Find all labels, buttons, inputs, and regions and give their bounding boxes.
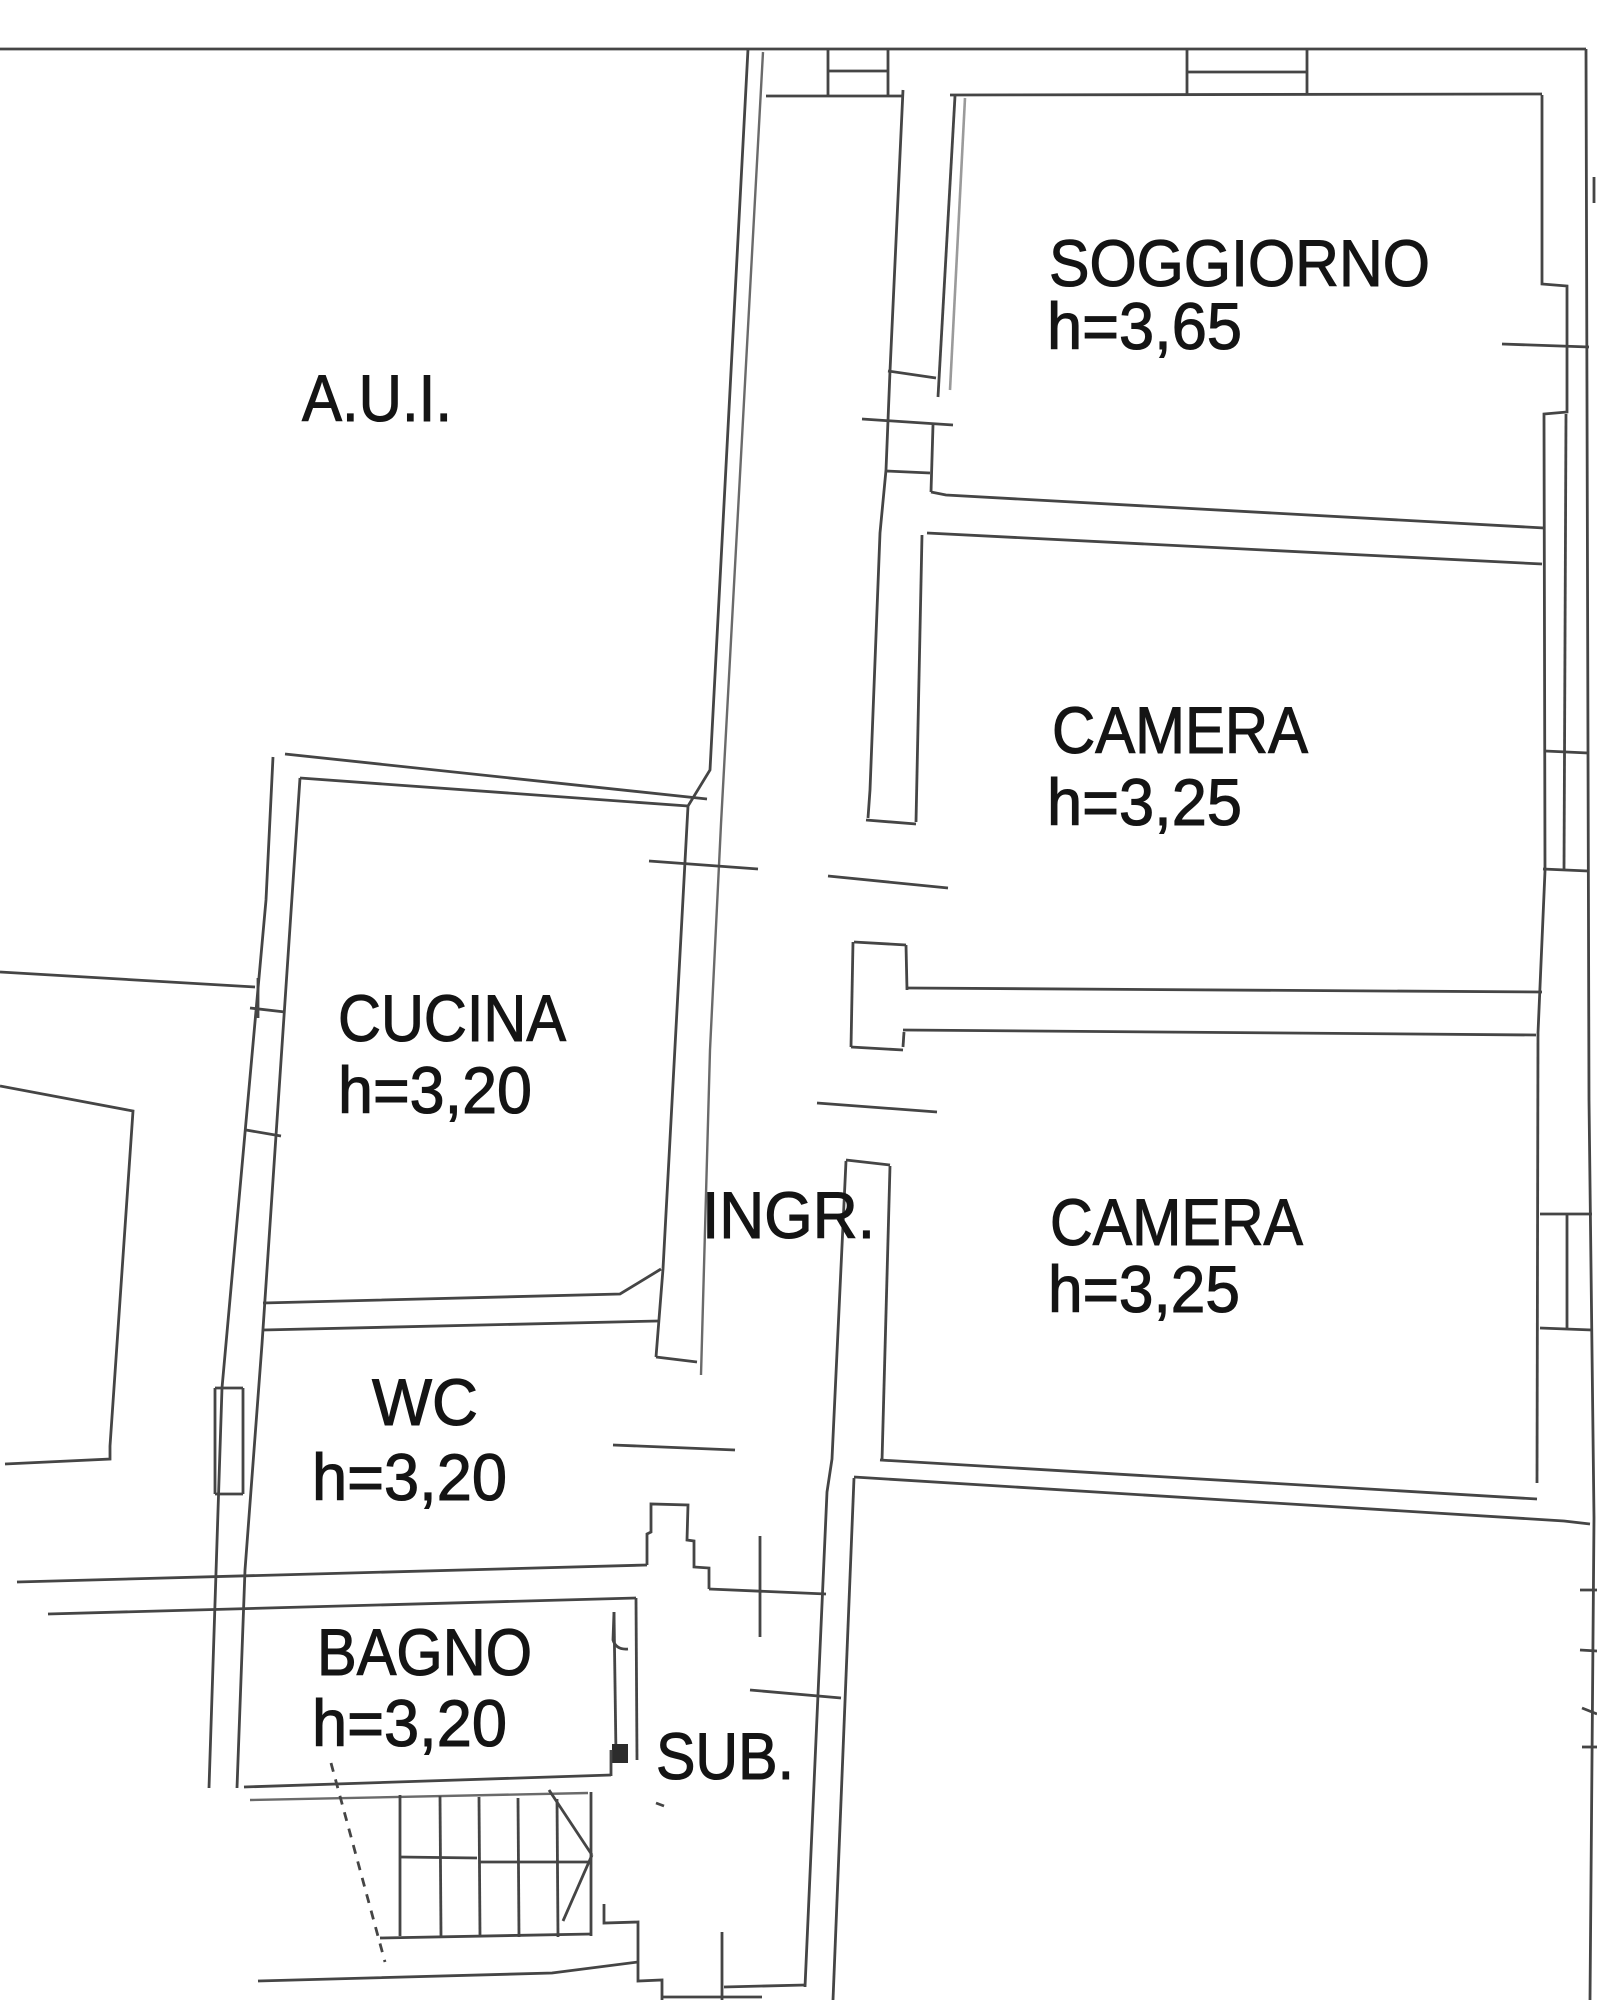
- svg-text:INGR.: INGR.: [702, 1178, 875, 1252]
- svg-text:h=3,25: h=3,25: [1047, 765, 1242, 839]
- svg-text:CAMERA: CAMERA: [1052, 693, 1308, 767]
- svg-text:WC: WC: [372, 1365, 478, 1439]
- svg-text:A.U.I.: A.U.I.: [302, 361, 452, 435]
- svg-text:CAMERA: CAMERA: [1050, 1185, 1303, 1259]
- svg-text:BAGNO: BAGNO: [317, 1615, 532, 1689]
- svg-text:h=3,20: h=3,20: [312, 1686, 507, 1760]
- svg-text:h=3,25: h=3,25: [1048, 1252, 1240, 1326]
- svg-text:CUCINA: CUCINA: [338, 981, 566, 1055]
- svg-text:h=3,20: h=3,20: [312, 1440, 507, 1514]
- svg-text:h=3,65: h=3,65: [1047, 289, 1242, 363]
- svg-text:h=3,20: h=3,20: [338, 1053, 532, 1127]
- svg-text:SUB.: SUB.: [656, 1719, 794, 1793]
